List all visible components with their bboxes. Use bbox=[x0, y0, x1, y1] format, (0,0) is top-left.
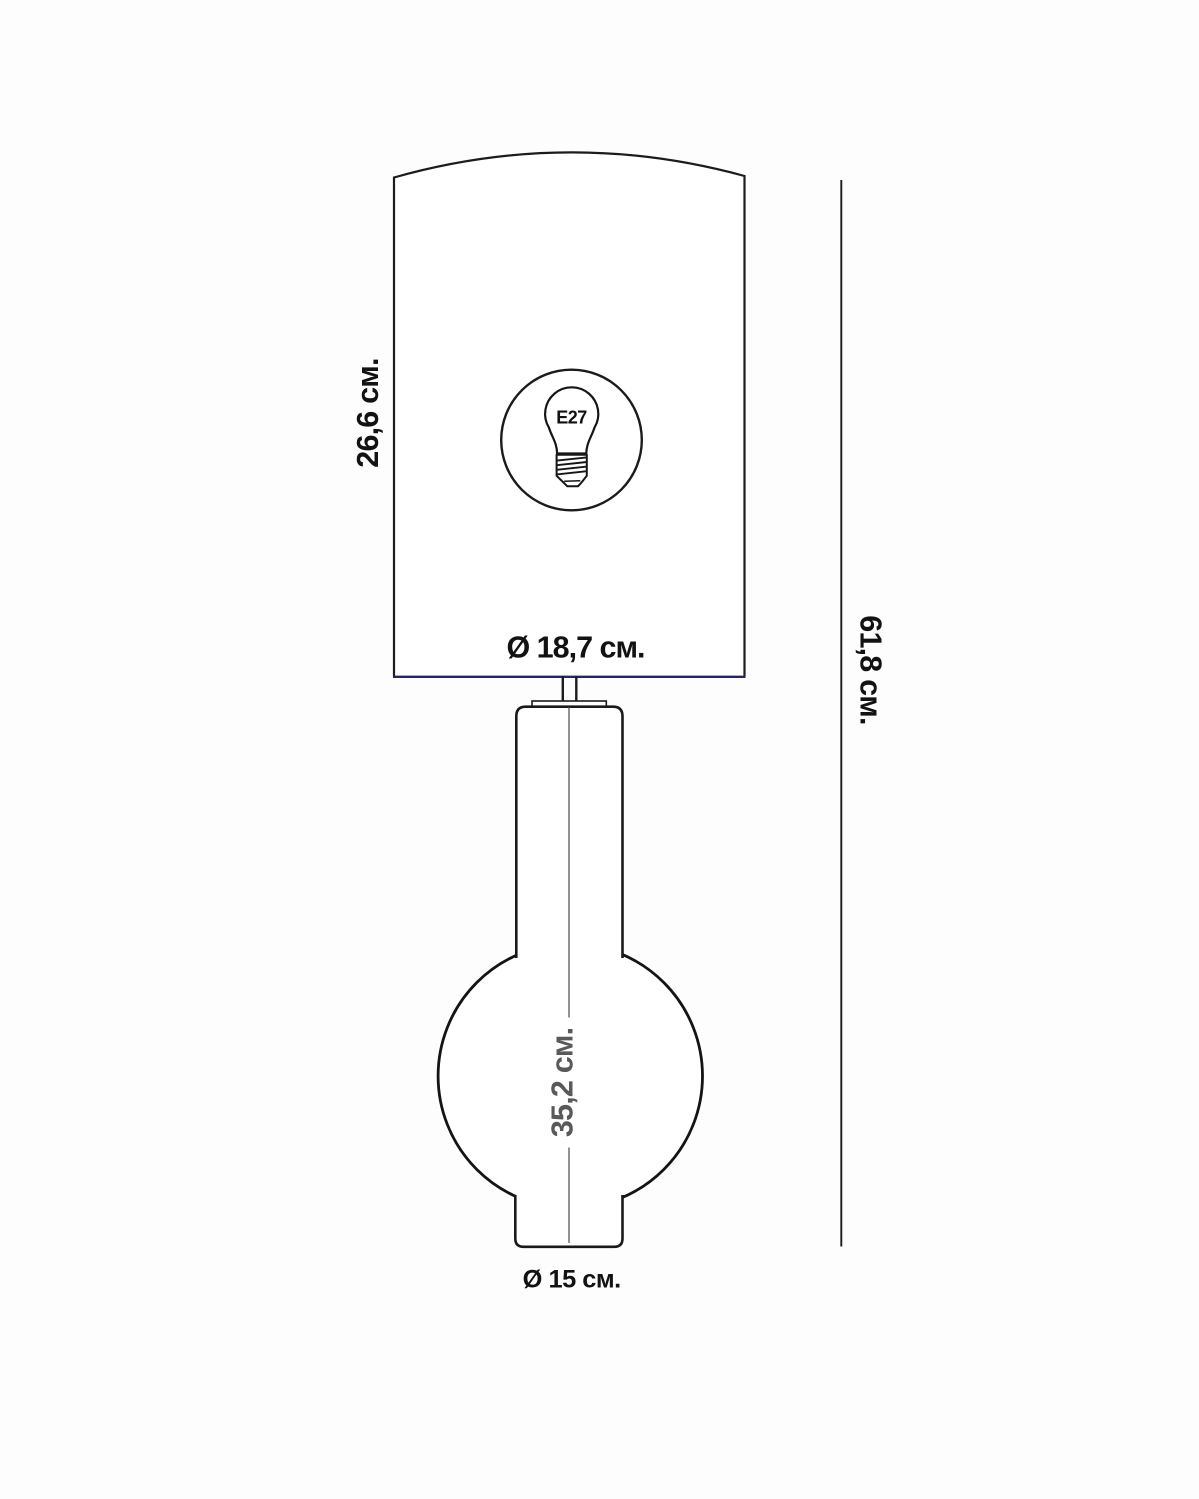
svg-text:Ø 18,7 см.: Ø 18,7 см. bbox=[506, 630, 644, 664]
svg-text:26,6 см.: 26,6 см. bbox=[351, 358, 385, 467]
svg-text:Ø 15 см.: Ø 15 см. bbox=[523, 1266, 621, 1294]
svg-text:61,8 см.: 61,8 см. bbox=[853, 615, 887, 724]
svg-text:35,2 см.: 35,2 см. bbox=[546, 1028, 580, 1137]
svg-text:E27: E27 bbox=[556, 407, 587, 427]
